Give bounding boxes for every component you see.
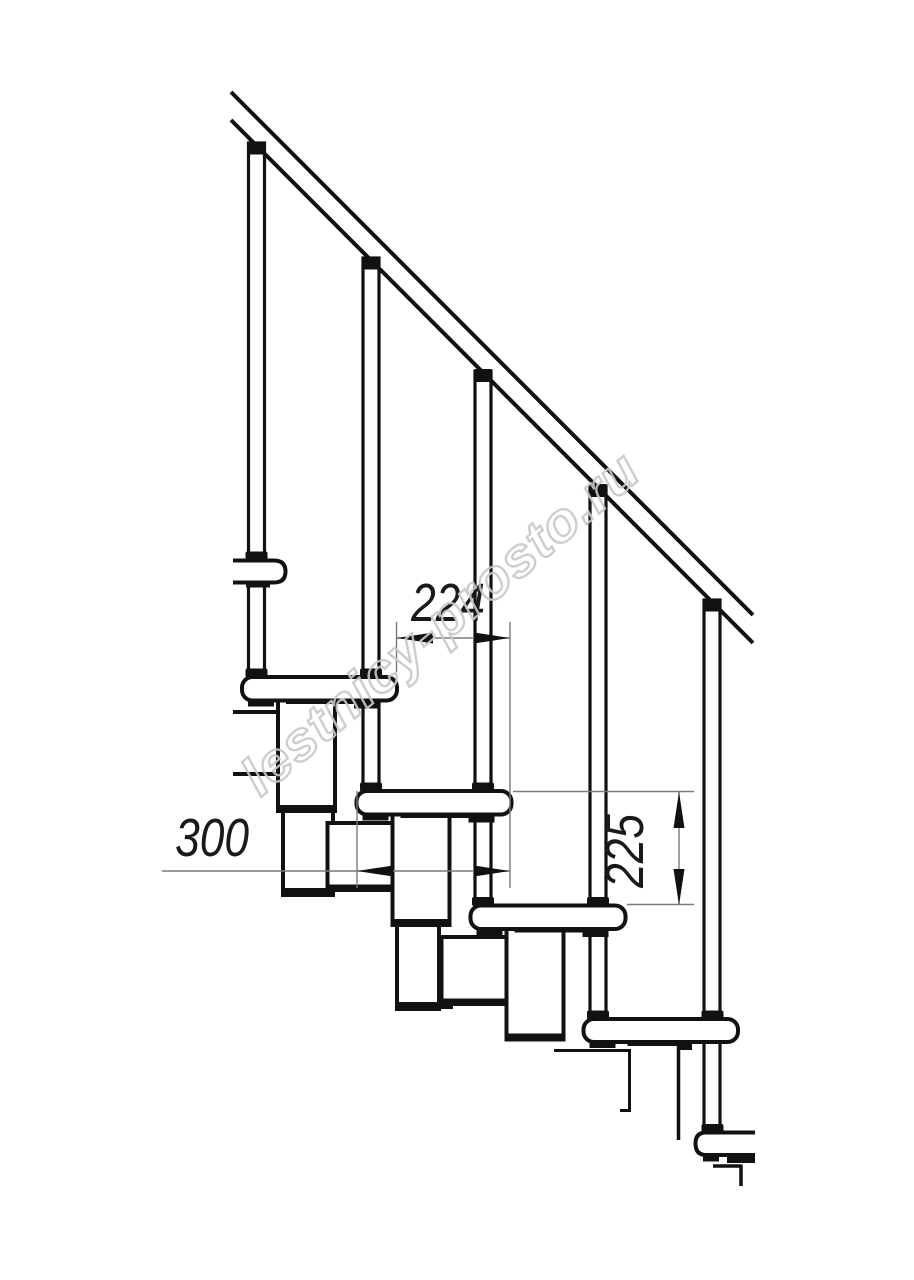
- tread4-shadow: [628, 1042, 680, 1047]
- tread-3: [471, 906, 626, 930]
- module4-cut-lines: [554, 1044, 679, 1140]
- module1-column-base: [278, 805, 335, 812]
- module2-column: [393, 812, 450, 925]
- tread2-shadow: [401, 814, 475, 818]
- tread-2: [357, 791, 512, 815]
- tread1-foot-left: [248, 700, 274, 707]
- baluster-1: [249, 143, 265, 677]
- tread-4: [584, 1019, 739, 1042]
- tread3-shadow: [515, 929, 589, 933]
- dimension-rise-value: 225: [595, 814, 655, 889]
- dim225-arrow-down: [674, 869, 685, 905]
- baluster-4: [590, 486, 606, 1020]
- clamp-b2-tread2: [360, 783, 382, 792]
- module3-column: [507, 927, 564, 1040]
- drawing-canvas: 224 300 225 lestnicy-prosto.ru: [0, 0, 914, 1280]
- module3-column-base: [507, 1034, 564, 1041]
- clamp-b3-tread3: [472, 897, 494, 906]
- tread-0-cut: [233, 561, 286, 583]
- tread2-foot-right: [469, 815, 495, 823]
- tread5-foot: [703, 1155, 719, 1162]
- module2-lower-block: [397, 925, 439, 1009]
- baluster-2-rail-connector: [363, 257, 379, 270]
- baluster-1-rail-connector: [249, 142, 265, 155]
- dimension-depth-value: 300: [175, 808, 249, 868]
- tread0-foot: [246, 582, 270, 588]
- clamp-b5-tread4: [702, 1011, 724, 1020]
- tread2-foot-left: [363, 814, 389, 821]
- clamp-b1-tread0: [246, 552, 268, 561]
- staircase-drawing: 224 300 225 lestnicy-prosto.ru: [0, 0, 914, 1280]
- tread3-foot-right: [583, 929, 609, 937]
- watermark-text: lestnicy-prosto.ru: [230, 440, 652, 807]
- tread-5-cut: [696, 1133, 756, 1156]
- tread4-foot-right: [678, 1041, 692, 1050]
- tread4-foot-left: [590, 1042, 616, 1049]
- module5-cut-lines: [713, 1165, 741, 1187]
- clamp-b4-tread3: [587, 897, 609, 906]
- clamp-b4-tread4: [587, 1011, 609, 1020]
- tread3-foot-left: [477, 929, 503, 936]
- baluster-5-rail-connector: [704, 599, 720, 612]
- baluster-5: [704, 600, 720, 1134]
- clamp-b1-tread1: [246, 669, 268, 678]
- dim225-arrow-up: [674, 792, 685, 828]
- clamp-b5-tread5: [702, 1124, 724, 1133]
- tread5-shadow: [727, 1153, 755, 1163]
- clamp-b3-tread2: [472, 783, 494, 792]
- baluster-3-rail-connector: [475, 369, 491, 382]
